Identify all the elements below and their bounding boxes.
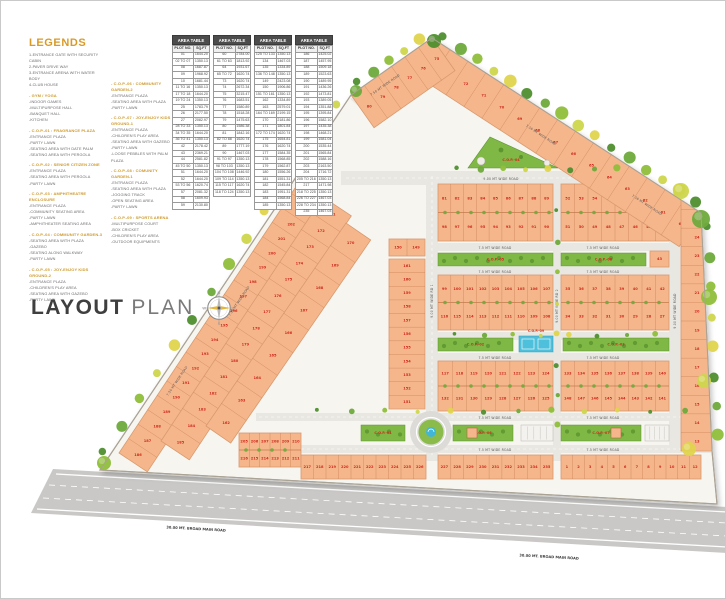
legend-item: -PARTY LAWN <box>29 256 105 262</box>
plot-number: 221 <box>353 465 361 469</box>
plot-number: 222 <box>366 465 374 469</box>
road-label: 7.5 MT WIDE ROAD <box>479 448 512 452</box>
plot-number: 126 <box>528 397 536 401</box>
plot-number: 182 <box>209 391 217 395</box>
area-table-cell: 118 TO 124 <box>214 190 236 197</box>
legend-section-header: - C.O.P.-07 : JOY-ENJOY KIDS GROUND-1 <box>111 115 173 127</box>
plot-number: 106 <box>530 287 538 291</box>
plot-number: 53 <box>579 196 585 200</box>
bush <box>547 384 551 388</box>
tree <box>554 421 560 427</box>
plot-number: 33 <box>579 314 585 318</box>
plot-number: 220 <box>341 465 349 469</box>
tree <box>548 407 554 413</box>
legend-section-header: - C.O.P.-09 : SPORTS ARENA <box>111 215 173 221</box>
plot-number: 31 <box>606 314 612 318</box>
bush <box>657 384 661 388</box>
bush <box>521 384 525 388</box>
bush <box>257 448 261 452</box>
cop-label: C.O.P.-08 <box>595 258 613 262</box>
bush <box>456 301 460 305</box>
bush <box>482 384 486 388</box>
plot-number: 22 <box>694 273 700 277</box>
plot-number: 143 <box>631 397 639 401</box>
plot-number: 177 <box>263 310 271 314</box>
area-table-cell: 1350.13 <box>276 203 291 210</box>
plot-number: 175 <box>285 278 293 282</box>
plot-number: 90 <box>544 225 550 229</box>
plot-block: 1171181191201211221231241321311301291281… <box>438 361 553 411</box>
plot-strip: 161160159158157156155154153152151 <box>389 259 425 409</box>
area-table-3: AREA TABLEPLOT NO.SQ.FT125 TO 1331350.13… <box>254 35 292 210</box>
plot-number: 10 <box>669 465 675 469</box>
legend-item: 1-ENTRANCE GATE WITH SECURITY CABIN <box>29 52 105 64</box>
legend-item: 3-ENTRANCE ARENA WITH WATER BODY <box>29 70 105 82</box>
road-label: 9.00 MT WIDE ROAD <box>673 293 677 329</box>
tree <box>624 151 636 163</box>
compass-e: E <box>233 305 236 310</box>
plot-number: 142 <box>645 397 653 401</box>
plot-number: 46 <box>633 225 639 229</box>
plot-number: 224 <box>391 465 399 469</box>
area-table-row: 592130.80 <box>173 203 210 210</box>
bush <box>605 211 609 215</box>
plot-number: 36 <box>579 287 585 291</box>
plot-number: 144 <box>618 397 626 401</box>
plot-number: 96 <box>467 225 473 229</box>
legend-item: -KITCHEN <box>29 117 105 123</box>
plot-number: 159 <box>403 291 411 295</box>
bush <box>456 211 460 215</box>
tree <box>554 363 559 368</box>
tree <box>516 409 520 413</box>
title-layout: LAYOUT <box>31 296 124 320</box>
area-tables: AREA TABLEPLOT NO.SQ.FT011644.2002 TO 07… <box>172 35 333 216</box>
tree <box>555 269 560 274</box>
plot-number: 120 <box>485 372 493 376</box>
plot-number: 82 <box>455 196 461 200</box>
compass-icon: N E S W <box>201 290 237 326</box>
plot-number: 88 <box>531 196 537 200</box>
bush <box>566 384 570 388</box>
cop-area: C.O.P.-05 <box>438 253 553 266</box>
area-table-cell: 235 <box>296 209 318 216</box>
cop-area: C.O.P.-02 <box>438 338 513 351</box>
plot-number: 138 <box>631 372 639 376</box>
bush <box>644 301 648 305</box>
plot-number: 94 <box>493 225 499 229</box>
cop-area: C.O.P.-08 <box>561 253 646 266</box>
plot-number: 140 <box>658 372 666 376</box>
tree <box>625 333 629 337</box>
legend-item: -SEATING AREA WITH PLAZA <box>111 99 173 105</box>
road-label: 9.00 MT WIDE RD 1 <box>430 284 434 318</box>
plot-number: 70 <box>499 105 505 109</box>
tree <box>712 402 721 411</box>
plot-number: 101 <box>466 287 474 291</box>
tree <box>414 33 426 45</box>
plot-number: 235 <box>543 465 551 469</box>
legend-section-header: - C.O.P.-08 : COMUNITY GARDEN-1 <box>111 168 173 180</box>
plot-block: 43 <box>650 251 669 267</box>
cop-label: C.O.P.-02 <box>467 343 485 347</box>
plot-number: 223 <box>378 465 386 469</box>
plot-number: 113 <box>479 314 487 318</box>
plot-number: 78 <box>394 86 400 90</box>
plot-number: 233 <box>517 465 525 469</box>
plot-number: 42 <box>660 287 666 291</box>
plot-number: 32 <box>592 314 598 318</box>
plot-number: 151 <box>403 400 411 404</box>
tree <box>169 339 181 351</box>
plot-number: 214 <box>261 457 269 461</box>
bush <box>605 384 609 388</box>
legend-item: -AMPHITHEATER SEATING AREA <box>29 221 105 227</box>
plot-number: 164 <box>253 376 261 380</box>
plot-number: 153 <box>403 373 411 377</box>
tree <box>658 175 667 184</box>
legend-item: 4-CLUB HOUSE <box>29 82 105 88</box>
water-body <box>426 427 436 437</box>
plot-number: 232 <box>505 465 513 469</box>
plot-number: 108 <box>543 314 551 318</box>
plot-number: 192 <box>192 367 200 371</box>
plot-number: 97 <box>455 225 461 229</box>
plot-number: 12 <box>693 465 699 469</box>
bush <box>644 384 648 388</box>
tree <box>541 99 550 108</box>
plot-number: 64 <box>607 175 613 179</box>
plot-number: 48 <box>606 225 612 229</box>
cop-area: C.O.P.-07 <box>561 425 641 441</box>
tree <box>332 100 340 108</box>
plot-number: 13 <box>694 440 700 444</box>
plot-number: 157 <box>403 318 411 322</box>
bush <box>482 301 486 305</box>
bush <box>495 301 499 305</box>
plot-number: 229 <box>466 465 474 469</box>
tree <box>400 47 408 55</box>
plot-number: 76 <box>421 67 427 71</box>
plot-number: 206 <box>251 440 259 444</box>
tree <box>116 421 127 432</box>
cop-label: C.O.P.-07 <box>592 431 610 435</box>
road-label: 7.5 MT WIDE ROAD <box>587 270 620 274</box>
plot-number: 209 <box>282 440 290 444</box>
road-label: 7.5 MT WIDE ROAD <box>587 448 620 452</box>
plot-number: 40 <box>633 287 639 291</box>
bush <box>443 301 447 305</box>
plot-number: 77 <box>407 76 413 80</box>
plan-title: LAYOUT PLAN N E S W <box>31 290 237 326</box>
plot-number: 91 <box>531 225 537 229</box>
plot-number: 174 <box>296 261 304 265</box>
area-table-cell: 185 <box>255 203 277 210</box>
title-plan: PLAN <box>131 296 194 320</box>
plot-number: 170 <box>347 241 355 245</box>
tree <box>682 168 687 173</box>
parking-area <box>521 425 553 441</box>
main-road-label: 30.00 MT. BROAD MAIN ROAD <box>519 553 579 560</box>
road-label: 9.00 MT WIDE ROAD <box>483 177 519 181</box>
tree <box>135 394 145 404</box>
plot-number: 230 <box>479 465 487 469</box>
legend-section-header: - C.O.P.-05 : JOY-ENJOY KIDS GROUND-2 <box>29 267 105 279</box>
plot-number: 234 <box>530 465 538 469</box>
legend-item: -PARTY LAWN <box>111 105 173 111</box>
plot-number: 154 <box>403 359 411 363</box>
plot-number: 14 <box>694 421 700 425</box>
road-label: 9.00 MT WIDE RD 2 <box>555 289 559 323</box>
plot-number: 210 <box>292 440 300 444</box>
tree <box>582 409 587 414</box>
plot-number: 193 <box>201 352 209 356</box>
tree <box>241 234 252 245</box>
plot-number: 66 <box>571 152 577 156</box>
tree <box>556 393 560 397</box>
plot-number: 85 <box>493 196 499 200</box>
tree <box>690 197 701 208</box>
tree <box>592 166 597 171</box>
plot-block: 150149 <box>389 239 425 256</box>
cop-label: C.O.P.-04 <box>502 158 520 162</box>
plot-number: 173 <box>306 245 314 249</box>
plot-number: 50 <box>579 225 585 229</box>
tree <box>708 314 716 322</box>
parking-area <box>645 425 669 441</box>
bush <box>495 211 499 215</box>
legend-item: -PARTY LAWN <box>29 181 105 187</box>
plot-number: 115 <box>453 314 461 318</box>
plot-number: 112 <box>492 314 500 318</box>
plot-number: 87 <box>519 196 525 200</box>
plot-number: 160 <box>403 277 411 281</box>
plot-number: 152 <box>403 387 411 391</box>
plot-number: 28 <box>646 314 652 318</box>
plot-number: 18 <box>694 347 700 351</box>
bush <box>443 384 447 388</box>
bush <box>521 301 525 305</box>
compass-n: N <box>218 290 221 295</box>
legend-item: -LOOSE PEBBLES WITH PALM PLAZA <box>111 151 173 163</box>
tree <box>382 408 387 413</box>
plot-number: 205 <box>240 440 248 444</box>
tree <box>453 332 457 336</box>
plot-number: 178 <box>252 326 260 330</box>
roundabout <box>410 411 452 453</box>
area-table-row: 2351467.03 <box>296 209 333 216</box>
plot-number: 17 <box>694 365 700 369</box>
plot-number: 158 <box>403 305 411 309</box>
tree <box>153 369 161 377</box>
plot-number: 130 <box>470 397 478 401</box>
legends-column-left: 1-ENTRANCE GATE WITH SECURITY CABIN2-PAV… <box>29 52 105 303</box>
plot-number: 139 <box>645 372 653 376</box>
tree <box>478 166 485 173</box>
bush <box>443 211 447 215</box>
plot-number: 110 <box>517 314 525 318</box>
legend-section-header: - C.O.P.-03 : AMPHITHEATRE ENCLOSURE <box>29 191 105 203</box>
legend-item: -OUTDOOR EQUIPMENTS <box>111 239 173 245</box>
tree <box>99 448 107 456</box>
plot-number: 199 <box>259 266 267 270</box>
plot-number: 11 <box>681 465 687 469</box>
plot-number: 41 <box>646 287 652 291</box>
plot-number: 147 <box>577 397 585 401</box>
plot-number: 183 <box>198 408 206 412</box>
plot-number: 95 <box>480 225 486 229</box>
plot-number: 93 <box>506 225 512 229</box>
main-road-label: 30.00 MT. BROAD MAIN ROAD <box>166 525 226 532</box>
tree <box>555 240 561 246</box>
legend-section-header: - C.O.P.-01 : FRAGRANCE PLAZA <box>29 128 105 134</box>
bush <box>508 384 512 388</box>
plot-block: 123456789101112 <box>561 455 701 479</box>
tree <box>544 165 551 172</box>
plot-number: 165 <box>269 354 277 358</box>
plot-number: 124 <box>542 372 550 376</box>
plot-number: 15 <box>694 403 700 407</box>
bush <box>618 384 622 388</box>
tree <box>504 75 517 88</box>
tree <box>613 164 620 171</box>
plot-number: 27 <box>660 314 666 318</box>
legend-item: -PARTY LAWN <box>111 204 173 210</box>
plot-number: 63 <box>625 187 631 191</box>
plot-block: 1331341351361371381391401481471461451441… <box>561 361 669 411</box>
area-table-title: AREA TABLE <box>295 35 333 45</box>
tree <box>567 167 573 173</box>
plot-number: 208 <box>271 440 279 444</box>
plot-number: 150 <box>394 246 402 250</box>
road-label: 7.5 MT WIDE ROAD <box>587 356 620 360</box>
plot-number: 104 <box>505 287 513 291</box>
plot-number: 20 <box>694 310 700 314</box>
entrance-structure <box>611 428 621 438</box>
bush <box>508 211 512 215</box>
plot-number: 198 <box>249 280 257 284</box>
plot-number: 226 <box>416 465 424 469</box>
plot-number: 49 <box>592 225 598 229</box>
tree <box>482 333 487 338</box>
plot-block: 227228229230231232233234235 <box>438 455 553 479</box>
tree <box>682 408 688 414</box>
bush <box>592 211 596 215</box>
plot-number: 72 <box>463 82 469 86</box>
plot-number: 207 <box>261 440 269 444</box>
plot-number: 141 <box>658 397 666 401</box>
plot-number: 37 <box>592 287 598 291</box>
road-label: 7.5 MT WIDE ROAD <box>587 246 620 250</box>
plot-number: 155 <box>403 346 411 350</box>
plot-number: 219 <box>328 465 336 469</box>
legends-title: LEGENDS <box>29 37 175 49</box>
plot-number: 201 <box>278 237 286 241</box>
plot-number: 43 <box>657 257 663 261</box>
plot-block: 217218219220221222223224225226 <box>301 455 426 479</box>
area-table-title: AREA TABLE <box>213 35 251 45</box>
area-table-row: 1851350.13 <box>255 203 292 210</box>
tree <box>455 43 467 55</box>
tree <box>555 302 559 306</box>
tree <box>555 106 568 119</box>
bush <box>547 211 551 215</box>
plot-number: 135 <box>591 372 599 376</box>
legends-panel: LEGENDS 1-ENTRANCE GATE WITH SECURITY CA… <box>29 37 175 303</box>
plot-number: 188 <box>153 424 161 428</box>
plot-number: 83 <box>467 196 473 200</box>
area-table-cell: 1350.13 <box>235 190 250 197</box>
tree <box>607 144 615 152</box>
plot-number: 176 <box>274 294 282 298</box>
bush <box>270 448 274 452</box>
plot-number: 30 <box>619 314 625 318</box>
plot-number: 184 <box>188 424 196 428</box>
plot-number: 167 <box>300 308 308 312</box>
plot-number: 156 <box>403 332 411 336</box>
road-label: 7.5 MT WIDE ROAD <box>587 416 620 420</box>
entrance-structure <box>467 428 477 438</box>
tree <box>615 408 620 413</box>
plot-number: 200 <box>268 251 276 255</box>
plot-number: 218 <box>316 465 324 469</box>
plot-number: 166 <box>285 331 293 335</box>
area-table-2: AREA TABLEPLOT NO.SQ.FT602784.0061 TO 63… <box>213 35 251 197</box>
plot-number: 212 <box>282 457 290 461</box>
tree <box>554 208 558 212</box>
plot-number: 29 <box>633 314 639 318</box>
bush <box>618 211 622 215</box>
plot-number: 180 <box>231 359 239 363</box>
plot-number: 161 <box>403 264 411 268</box>
plot-number: 118 <box>456 372 464 376</box>
bush <box>657 301 661 305</box>
plot-number: 79 <box>380 95 386 99</box>
tree <box>641 165 651 175</box>
bush <box>566 301 570 305</box>
bush <box>521 211 525 215</box>
plot-number: 107 <box>543 287 551 291</box>
plot-number: 172 <box>317 229 325 233</box>
tree <box>481 410 486 415</box>
plot-number: 114 <box>466 314 474 318</box>
tree <box>652 331 658 337</box>
plot-number: 102 <box>479 287 487 291</box>
plot-number: 80 <box>367 105 373 109</box>
tree <box>454 166 459 171</box>
plot-number: 216 <box>240 457 248 461</box>
bush <box>534 211 538 215</box>
plot-number: 137 <box>618 372 626 376</box>
tree <box>500 165 506 171</box>
tree <box>353 78 361 86</box>
tree <box>659 166 664 171</box>
tree <box>448 408 454 414</box>
bush <box>547 301 551 305</box>
bush <box>244 448 248 452</box>
plot-number: 194 <box>211 338 219 342</box>
plot-number: 122 <box>513 372 521 376</box>
plot-number: 217 <box>303 465 311 469</box>
tree <box>648 410 652 414</box>
tree <box>223 258 235 270</box>
bush <box>469 211 473 215</box>
plot-number: 38 <box>606 287 612 291</box>
plot-number: 111 <box>505 314 513 318</box>
bush <box>631 301 635 305</box>
cop-area: C.O.P.-01 <box>361 425 405 441</box>
plot-number: 185 <box>177 440 185 444</box>
